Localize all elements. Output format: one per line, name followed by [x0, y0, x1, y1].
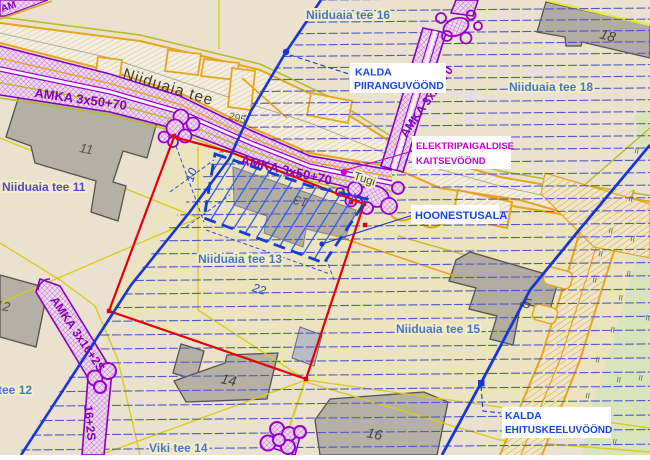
- svg-text:Niiduaia tee 18: Niiduaia tee 18: [509, 80, 593, 94]
- svg-text:Niiduaia tee 11: Niiduaia tee 11: [2, 180, 86, 194]
- svg-text:HOONESTUSALA: HOONESTUSALA: [415, 210, 507, 222]
- svg-text:Niiduaia tee 15: Niiduaia tee 15: [396, 322, 480, 336]
- svg-text:Niiduaia tee 12: Niiduaia tee 12: [0, 383, 32, 397]
- svg-text:KAITSEVÖÖND: KAITSEVÖÖND: [416, 156, 486, 167]
- svg-text:Viki tee 14: Viki tee 14: [149, 441, 208, 455]
- svg-text:KALDA: KALDA: [505, 410, 542, 422]
- svg-text:II: II: [645, 313, 650, 323]
- svg-text:Niiduaia tee 16: Niiduaia tee 16: [306, 8, 390, 22]
- svg-text:ELEKTRIPAIGALDISE: ELEKTRIPAIGALDISE: [416, 141, 514, 152]
- svg-text:11: 11: [78, 140, 94, 157]
- svg-text:KALDA: KALDA: [355, 67, 392, 79]
- svg-text:EHITUSKEELUVÖÖND: EHITUSKEELUVÖÖND: [505, 423, 612, 436]
- svg-text:Niiduaia tee 13: Niiduaia tee 13: [198, 252, 282, 266]
- svg-text:PIIRANGUVÖÖND: PIIRANGUVÖÖND: [354, 79, 444, 92]
